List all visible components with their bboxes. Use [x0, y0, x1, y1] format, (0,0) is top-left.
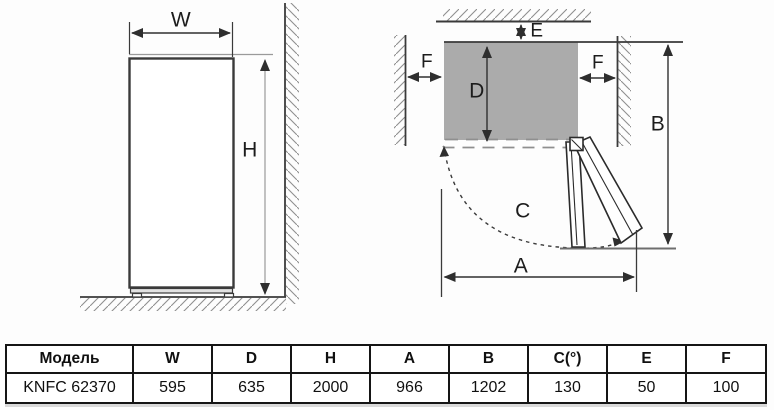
- installation-dimensions-figure: W H E F F D B C A Модель W D H A B C: [0, 0, 774, 410]
- label-side-gap-left-f: F: [421, 53, 433, 72]
- fridge-front-outline: [130, 59, 234, 298]
- top-view: [394, 9, 683, 297]
- dimension-diagram-canvas: [0, 0, 774, 340]
- col-header-model: Модель: [6, 345, 133, 373]
- col-header-c-deg: C(°): [528, 345, 607, 373]
- col-header-h: H: [291, 345, 370, 373]
- col-header-f: F: [686, 345, 766, 373]
- door-closed-dashed-outline: [442, 140, 578, 148]
- label-side-gap-right-f: F: [592, 54, 604, 73]
- label-depth-d: D: [469, 81, 485, 102]
- label-door-angle-c: C: [515, 201, 531, 222]
- cell-a: 966: [370, 373, 449, 403]
- cell-b: 1202: [449, 373, 528, 403]
- label-width-w: W: [171, 10, 191, 31]
- label-height-h: H: [242, 140, 258, 161]
- cell-f: 100: [686, 373, 766, 403]
- col-header-a: A: [370, 345, 449, 373]
- cell-h: 2000: [291, 373, 370, 403]
- col-header-d: D: [212, 345, 291, 373]
- cell-e: 50: [607, 373, 686, 403]
- dimensions-table: Модель W D H A B C(°) E F KNFC 62370 595…: [5, 344, 767, 404]
- rear-wall: [436, 9, 591, 22]
- col-header-w: W: [133, 345, 212, 373]
- label-rear-gap-e: E: [530, 22, 543, 41]
- table-header-row: Модель W D H A B C(°) E F: [6, 345, 766, 373]
- dimensions-table-container: Модель W D H A B C(°) E F KNFC 62370 595…: [5, 344, 767, 404]
- col-header-e: E: [607, 345, 686, 373]
- label-open-width-a: A: [514, 256, 529, 277]
- table-row: KNFC 62370 595 635 2000 966 1202 130 50 …: [6, 373, 766, 403]
- cell-c-deg: 130: [528, 373, 607, 403]
- cell-model: KNFC 62370: [6, 373, 133, 403]
- door-hinge: [570, 138, 583, 151]
- fridge-base-strip: [131, 289, 233, 294]
- fridge-foot-left: [133, 294, 142, 298]
- cell-d: 635: [212, 373, 291, 403]
- side-wall: [285, 3, 299, 304]
- front-view: [80, 3, 299, 311]
- floor: [80, 297, 286, 311]
- label-total-depth-b: B: [651, 114, 666, 135]
- left-wall: [394, 35, 406, 146]
- col-header-b: B: [449, 345, 528, 373]
- fridge-top-body: [444, 42, 578, 140]
- right-wall: [618, 36, 632, 147]
- fridge-foot-right: [225, 294, 234, 298]
- cell-w: 595: [133, 373, 212, 403]
